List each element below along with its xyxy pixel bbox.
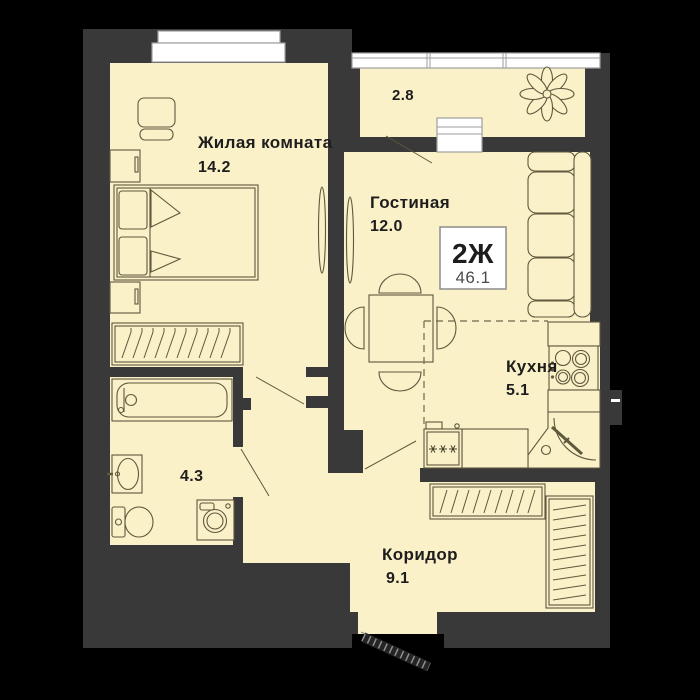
living-door-opening [363, 468, 420, 482]
floorplan-svg: Жилая комната 14.2 Гостиная 12.0 2.8 Кух… [0, 0, 700, 700]
shaft-tick [611, 399, 620, 402]
bedroom-label: Жилая комната [197, 133, 333, 152]
closet-hangers-icon [546, 496, 593, 608]
bathtub-icon [112, 379, 232, 421]
counter-icon [548, 390, 600, 412]
wall-stub [306, 396, 328, 408]
closet-hangers-icon [430, 484, 545, 519]
bedroom-window-sill [152, 43, 285, 62]
toilet-icon [112, 507, 153, 537]
entrance-threshold [358, 612, 437, 634]
corridor-area: 9.1 [386, 570, 409, 587]
bathroom-area: 4.3 [180, 468, 203, 485]
balcony-area: 2.8 [392, 87, 414, 104]
wall-nub [243, 398, 251, 410]
kitchen-area: 5.1 [506, 382, 529, 399]
flower-icon [520, 67, 574, 121]
chair-icon [138, 98, 175, 127]
counter-icon [462, 429, 528, 468]
counter-icon [548, 322, 600, 346]
balcony-window-band [352, 53, 600, 68]
entrance-opening [352, 634, 444, 700]
corridor-floor-2 [328, 473, 363, 563]
apartment-badge: 2Ж 46.1 [440, 227, 506, 289]
floorplan-canvas: Жилая комната 14.2 Гостиная 12.0 2.8 Кух… [0, 0, 700, 700]
ottoman-icon [140, 129, 173, 140]
balcony-window [352, 53, 600, 68]
washing-machine-icon [197, 500, 234, 540]
bed-icon [114, 185, 258, 280]
balcony-door-sill [437, 118, 482, 152]
badge-type: 2Ж [452, 238, 494, 269]
corridor-label: Коридор [382, 545, 458, 564]
bedroom-window [152, 31, 285, 62]
sofa-icon [528, 152, 591, 317]
bathroom-door-opening [233, 447, 243, 497]
bedroom-area: 14.2 [198, 159, 231, 176]
fridge-icon [424, 422, 462, 468]
wardrobe-icon [112, 323, 243, 365]
living-area: 12.0 [370, 218, 403, 235]
sink-icon [107, 455, 142, 493]
bedroom-door-opening [243, 367, 306, 377]
bedroom-window-outer [158, 31, 280, 43]
kitchen-label: Кухня [506, 357, 558, 376]
badge-total-area: 46.1 [455, 268, 490, 287]
balcony-door [437, 118, 482, 152]
living-label: Гостиная [370, 193, 450, 212]
